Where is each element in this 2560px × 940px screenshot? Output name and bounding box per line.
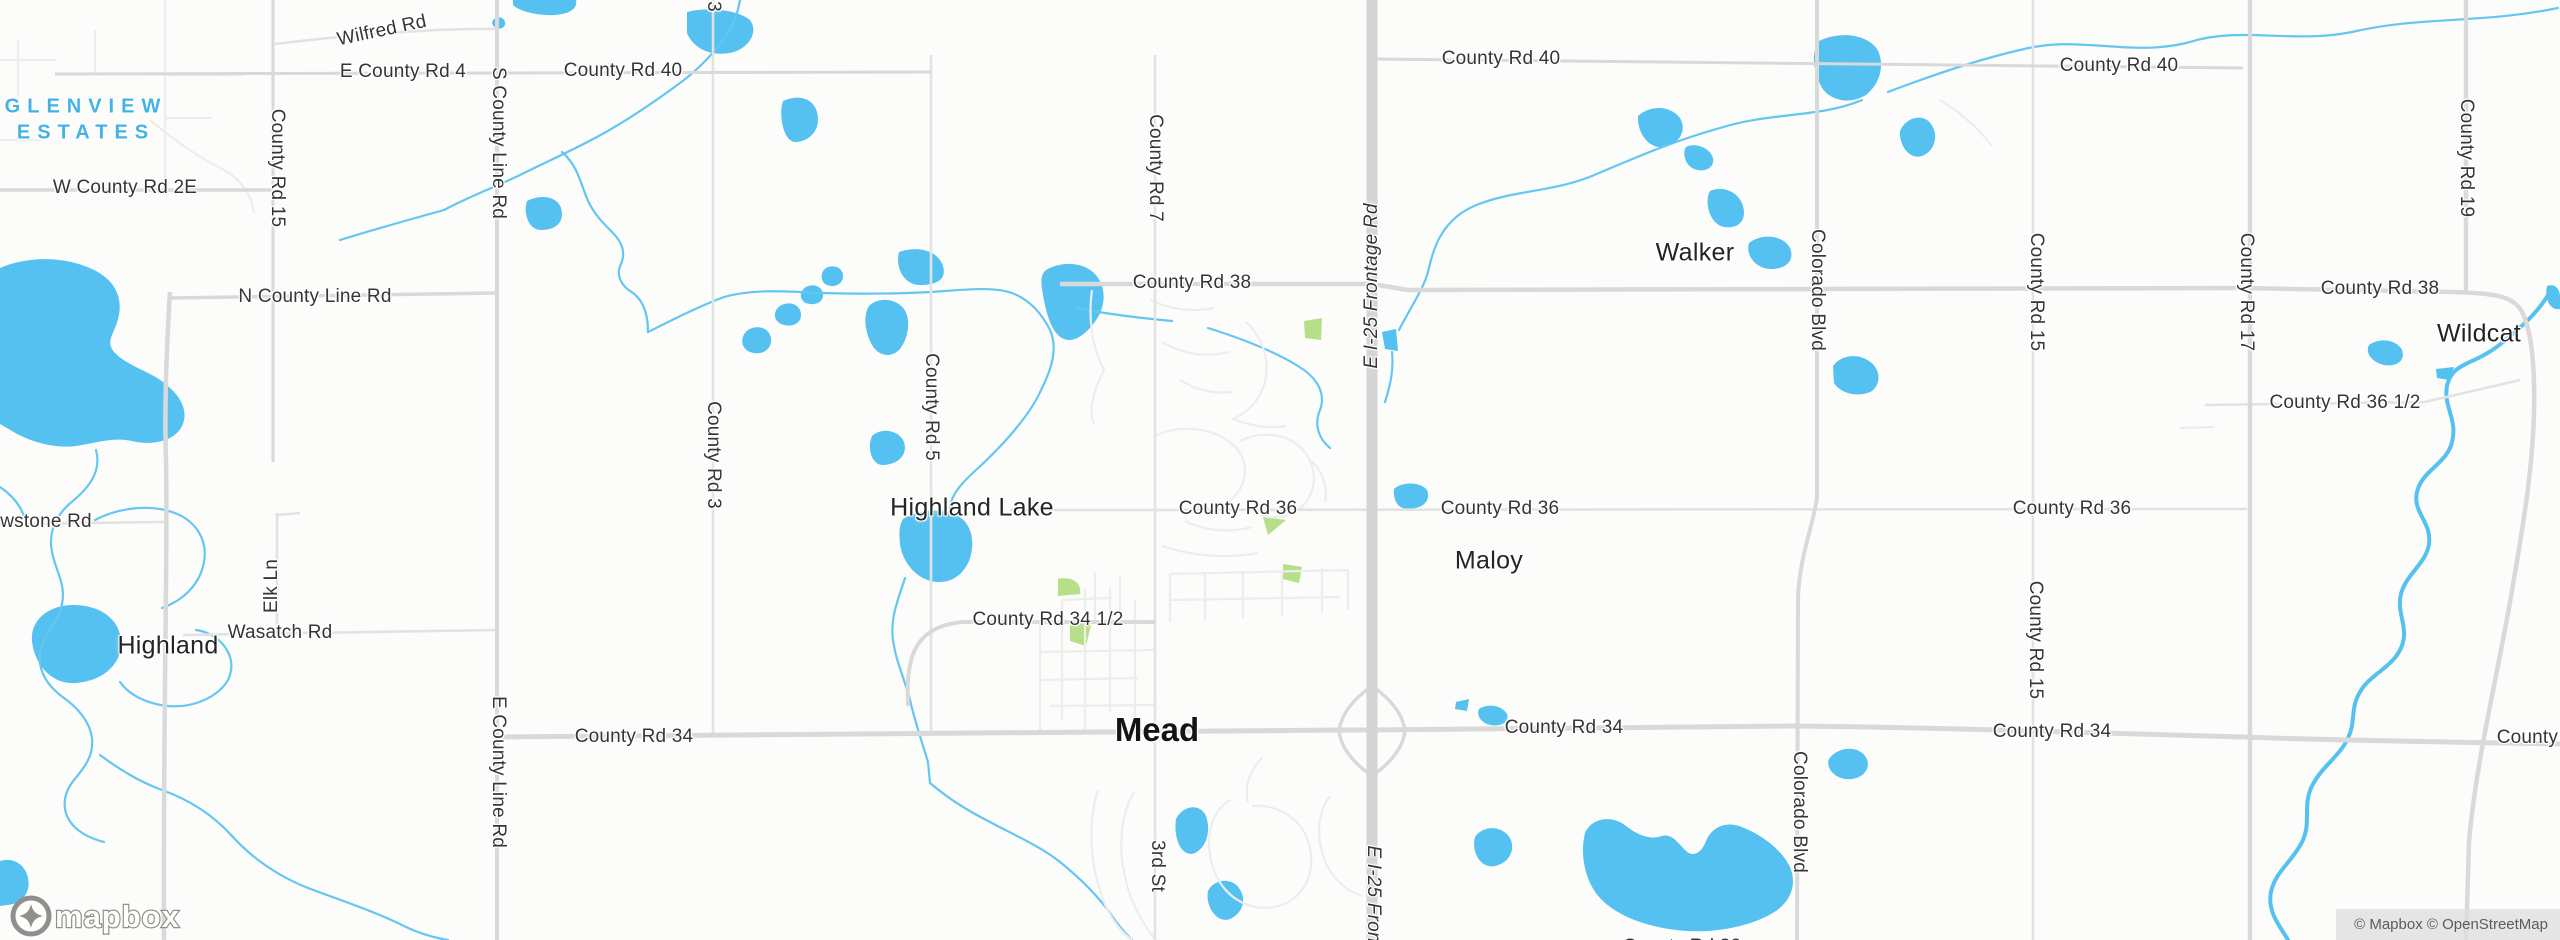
road-label: W County Rd 2E: [53, 177, 197, 199]
attribution-bar: © Mapbox © OpenStreetMap: [2336, 909, 2560, 940]
streams: [0, 0, 2558, 940]
road-label: County Rd 36: [1179, 498, 1298, 520]
road-label: County Rd 34: [1993, 721, 2112, 743]
minor-roads: [0, 0, 2214, 940]
road-label: County Rd 36 1/2: [2269, 392, 2420, 414]
road-label: County Rd 34: [575, 726, 694, 748]
road-label: County Rd 40: [564, 60, 683, 82]
water-bodies: [0, 0, 2560, 931]
road-label: Colorado Blvd: [1788, 751, 1810, 873]
road-label: wstone Rd: [0, 511, 92, 533]
road-label: E I-25 Frontage Rd: [1361, 203, 1383, 368]
map-geometry: [0, 0, 2560, 940]
road-label: E County Line Rd: [487, 696, 509, 848]
mapbox-logo-icon: [13, 898, 49, 934]
place-label-mead: Mead: [1115, 711, 1199, 749]
place-label-maloy: Maloy: [1455, 547, 1523, 576]
road-label: Elk Ln: [261, 559, 283, 613]
road-label: County Rd 5: [920, 353, 942, 461]
road-label: County Rd 7: [1144, 114, 1166, 222]
major-roads: [0, 0, 2560, 940]
road-label: County Rd 3: [702, 0, 724, 12]
road-label: County Rd 40: [2060, 55, 2179, 77]
road-label: Wasatch Rd: [228, 622, 333, 644]
road-label: E County Rd 4: [340, 61, 466, 83]
road-label: County Rd 15: [2025, 233, 2047, 352]
place-label-wildcat: Wildcat: [2437, 320, 2521, 349]
road-label: S County Line Rd: [487, 67, 509, 219]
road-label: County Rd 34: [2497, 727, 2560, 749]
road-label: County Rd 38: [1133, 272, 1252, 294]
map-canvas[interactable]: Wilfred Rd E County Rd 4 County Rd 40 Co…: [0, 0, 2560, 940]
road-label: E I-25 Frontage Rd: [1362, 845, 1384, 940]
place-label-walker: Walker: [1656, 239, 1735, 268]
place-label-highland: Highland: [117, 632, 218, 661]
road-label: Colorado Blvd: [1806, 229, 1828, 351]
road-label: County Rd 15: [2024, 581, 2046, 700]
road-label: County Rd 17: [2235, 233, 2257, 352]
road-label: County Rd 32: [1623, 936, 1742, 940]
mapbox-logo[interactable]: mapbox: [8, 893, 188, 939]
road-label: County Rd 38: [2321, 278, 2440, 300]
mapbox-wordmark: mapbox: [55, 899, 180, 934]
road-label: County Rd 40: [1442, 48, 1561, 70]
place-label-glenview-estates: GLENVIEW: [5, 96, 168, 119]
road-label: County Rd 19: [2455, 99, 2477, 218]
road-label: County Rd 36: [1441, 498, 1560, 520]
road-label: County Rd 34: [1505, 717, 1624, 739]
water-label-highland-lake: Highland Lake: [890, 494, 1054, 523]
road-label: County Rd 3: [702, 401, 724, 509]
road-label: 3rd St: [1146, 840, 1168, 892]
road-label: N County Line Rd: [238, 286, 391, 308]
road-label: County Rd 34 1/2: [972, 609, 1123, 631]
place-label-glenview-estates: ESTATES: [17, 122, 155, 145]
interstate-i25: [1339, 0, 1405, 940]
attribution-text[interactable]: © Mapbox © OpenStreetMap: [2354, 916, 2548, 933]
road-label: County Rd 15: [266, 109, 288, 228]
road-label: County Rd 36: [2013, 498, 2132, 520]
local-roads: [0, 0, 2520, 940]
